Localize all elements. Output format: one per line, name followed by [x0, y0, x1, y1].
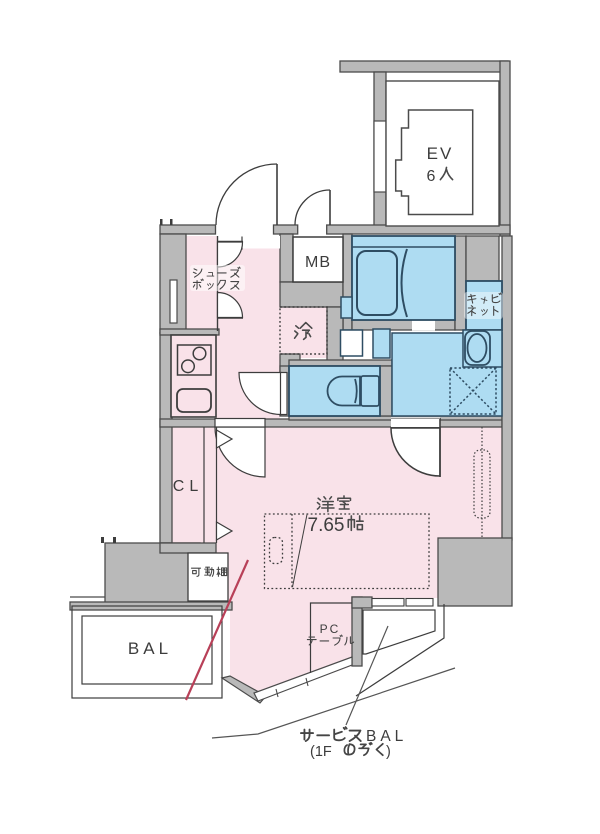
svg-text:): )	[386, 744, 391, 760]
svg-text:PC: PC	[320, 622, 341, 636]
svg-text:BAL: BAL	[128, 639, 172, 658]
svg-text:7.65: 7.65	[308, 515, 345, 536]
svg-text:(1F: (1F	[310, 744, 332, 760]
svg-text:CL: CL	[173, 478, 203, 495]
svg-text:6: 6	[427, 168, 436, 185]
svg-text:EV: EV	[427, 144, 454, 163]
svg-text:MB: MB	[305, 254, 331, 271]
svg-text:BAL: BAL	[366, 728, 407, 745]
